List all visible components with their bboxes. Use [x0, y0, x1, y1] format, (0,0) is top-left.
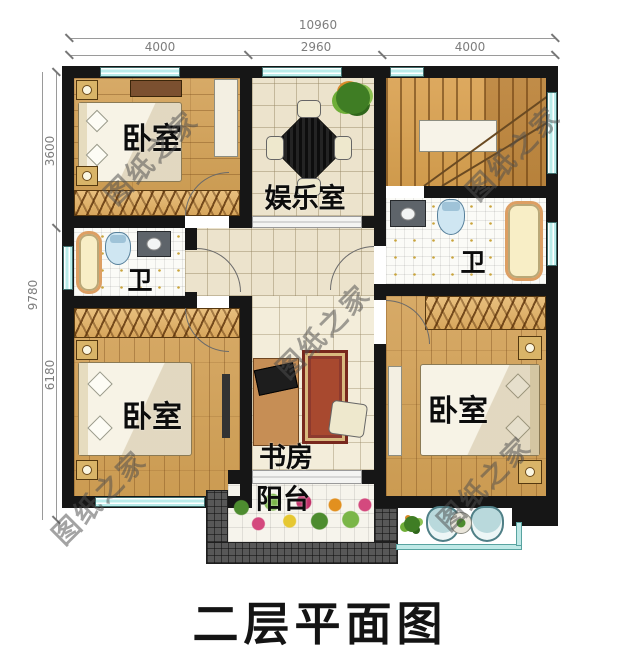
desk-chair	[328, 400, 368, 439]
wall-row1-left	[62, 216, 185, 228]
wall-bath-right-bottom	[374, 284, 558, 296]
pillow	[86, 110, 109, 133]
label-balcony: 阳台	[256, 478, 310, 517]
dim-top-seg-1: 4000	[120, 40, 200, 54]
dim-top-seg-3: 4000	[430, 40, 510, 54]
bed-headboard	[530, 365, 539, 455]
wall-b-upper	[374, 66, 386, 246]
stair-landing	[419, 120, 497, 152]
chair	[334, 136, 352, 160]
wall-balcony-jamb-left	[228, 470, 252, 484]
wall-row1-right	[229, 216, 252, 228]
dim-top-seg-2: 2960	[276, 40, 356, 54]
entertainment-opening-track	[252, 216, 362, 228]
terrace-plant	[404, 516, 420, 532]
dim-line-top-total	[70, 38, 556, 39]
window-entertainment	[262, 67, 342, 77]
window-stairs-top	[390, 67, 424, 77]
label-bedroom-bottom-left: 卧室	[122, 392, 182, 436]
wall-bathroom-left-jamb-top	[185, 228, 197, 250]
dim-top-total: 10960	[278, 18, 358, 32]
label-bathroom-right: 卫	[460, 243, 485, 279]
dressing-table	[388, 366, 402, 456]
dim-left-seg-2: 6180	[43, 350, 57, 400]
bathtub	[505, 201, 543, 281]
cabinet	[214, 79, 238, 157]
label-bedroom-bottom-right: 卧室	[428, 386, 488, 430]
balcony-parapet-bottom	[206, 542, 398, 564]
window-bedroom-top-left	[100, 67, 180, 77]
pillow	[505, 373, 530, 398]
wall-row2-right	[229, 296, 240, 308]
chair	[297, 100, 321, 118]
nightstand	[76, 80, 98, 100]
terrace-railing	[396, 544, 522, 550]
label-bathroom-left: 卫	[127, 261, 152, 297]
floor-plan-canvas: 10960 4000 2960 4000 9780 3600 6180	[0, 0, 640, 664]
tv-cabinet	[222, 374, 230, 438]
chair	[266, 136, 284, 160]
potted-plant	[336, 82, 370, 114]
dim-left-total: 9780	[26, 270, 40, 320]
dim-left-seg-1: 3600	[43, 126, 57, 176]
bed-headboard	[79, 363, 88, 455]
wall-bathroom-left-jamb-bottom	[185, 292, 197, 308]
toilet	[437, 199, 465, 235]
label-entertainment: 娱乐室	[265, 177, 346, 216]
pillow	[86, 144, 109, 167]
wall-a-upper	[240, 66, 252, 228]
label-study: 书房	[259, 436, 313, 475]
dim-line-top-segments	[70, 55, 556, 56]
sink-vanity	[137, 231, 171, 257]
terrace-railing-corner	[516, 522, 522, 546]
page-title: 二层平面图	[0, 588, 640, 654]
pillow	[87, 371, 112, 396]
pillow	[87, 415, 112, 440]
window-bathroom-right	[547, 222, 557, 266]
wall-stairs-bottom-stub	[374, 186, 386, 198]
sink-vanity	[390, 200, 426, 227]
window-bathroom-left	[63, 246, 73, 290]
dresser	[130, 80, 182, 97]
wall-balcony-jamb-right	[362, 470, 386, 484]
dim-line-left-segments	[56, 72, 57, 520]
wall-row2-left	[62, 296, 185, 308]
nightstand	[76, 340, 98, 360]
wall-row1-center-stub	[362, 216, 374, 228]
wardrobe-bedroom-bottom-right	[425, 296, 546, 330]
balcony-parapet-right	[374, 508, 398, 542]
bathtub	[76, 231, 102, 294]
nightstand	[518, 336, 542, 360]
